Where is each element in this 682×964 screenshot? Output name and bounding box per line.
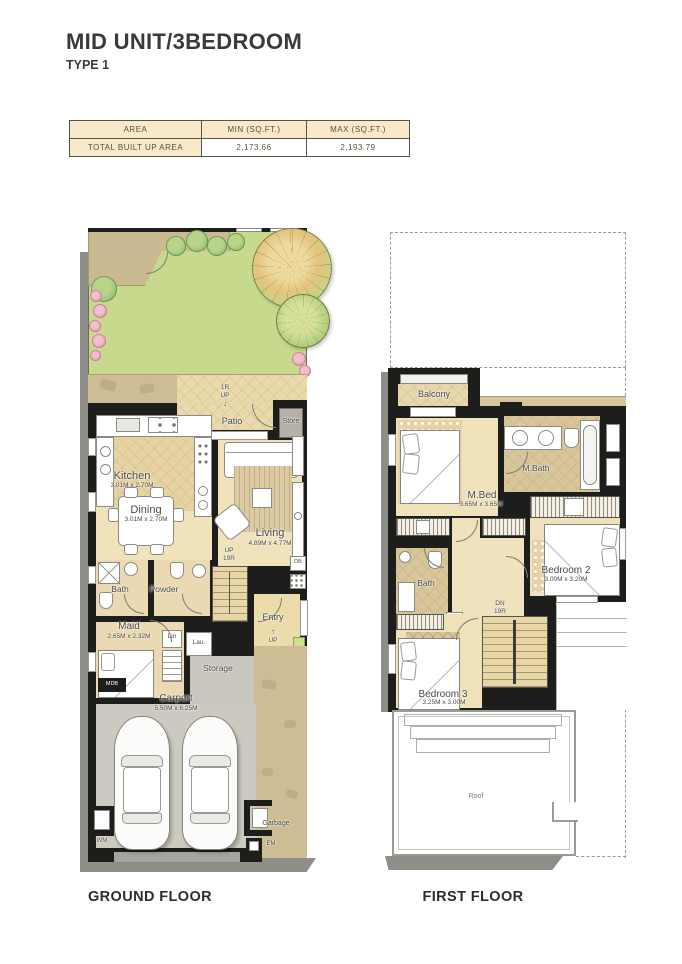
- wardrobe-shelf-icon: [416, 520, 430, 534]
- balcony-railing-icon: [400, 374, 468, 384]
- sink-icon: [399, 551, 411, 563]
- pillow-icon: [402, 453, 420, 475]
- toilet-icon: [564, 428, 579, 448]
- ff-mbed-window: [388, 434, 396, 466]
- roof-step-icon: [416, 739, 550, 753]
- wardrobe-icon: [396, 614, 444, 630]
- ff-mbed-dims: 3.65M x 3.65M: [441, 502, 521, 509]
- ff-balcony-label: Balcony: [394, 390, 474, 399]
- floorplan-page: MID UNIT/3BEDROOM TYPE 1 AREA MIN (SQ.FT…: [0, 0, 682, 964]
- pillow-icon: [601, 547, 618, 567]
- first-floor-plan: Balcony M.Bed 3.65M x 3.65M M.Bath: [0, 0, 682, 964]
- ff-bedroom2-south-window: [556, 596, 598, 603]
- roof-step-icon: [404, 714, 562, 726]
- pillow-icon: [400, 660, 417, 680]
- roof-line-icon: [557, 618, 627, 619]
- roof-notch-icon: [552, 802, 578, 822]
- ff-bedroom3-dims: 3.25M x 3.00M: [404, 700, 484, 707]
- ff-stairs-risers-label: 19R: [480, 609, 520, 616]
- ff-dashed-bottom-boundary: [576, 856, 626, 857]
- pillow-icon: [402, 433, 421, 455]
- roof-line-icon: [557, 646, 627, 647]
- ff-balcony-door: [410, 407, 456, 417]
- ff-shaft: [606, 458, 620, 486]
- ff-bath-label: Bath: [396, 579, 456, 588]
- ff-stairs-dn-label: DN: [480, 601, 520, 608]
- pillow-icon: [601, 527, 618, 548]
- sink-icon: [512, 430, 528, 446]
- ff-mbed-label: M.Bed: [452, 491, 512, 502]
- ff-roof: [392, 710, 576, 856]
- pillow-icon: [400, 641, 417, 662]
- ground-floor-caption: GROUND FLOOR: [70, 889, 230, 905]
- sink-icon: [538, 430, 554, 446]
- ff-bedroom2-label: Bedroom 2: [526, 566, 606, 577]
- wardrobe-icon: [482, 518, 526, 536]
- ff-roof-right-strip: [556, 604, 626, 710]
- stairs-rail-icon: [513, 620, 516, 684]
- first-floor-caption: FIRST FLOOR: [393, 889, 553, 905]
- wardrobe-shelf-icon: [564, 498, 584, 516]
- ff-shadow-bottom: [385, 856, 563, 870]
- ff-dashed-outline: [390, 232, 626, 368]
- ff-shaft: [606, 424, 620, 452]
- bathtub-inner-icon: [583, 425, 597, 485]
- ff-bedroom2-dims: 3.00M x 3.20M: [526, 577, 606, 584]
- ff-bedroom3-window: [388, 644, 396, 674]
- roof-step-icon: [410, 726, 556, 739]
- roof-line-icon: [557, 632, 627, 633]
- ff-roof-label: Roof: [446, 793, 506, 800]
